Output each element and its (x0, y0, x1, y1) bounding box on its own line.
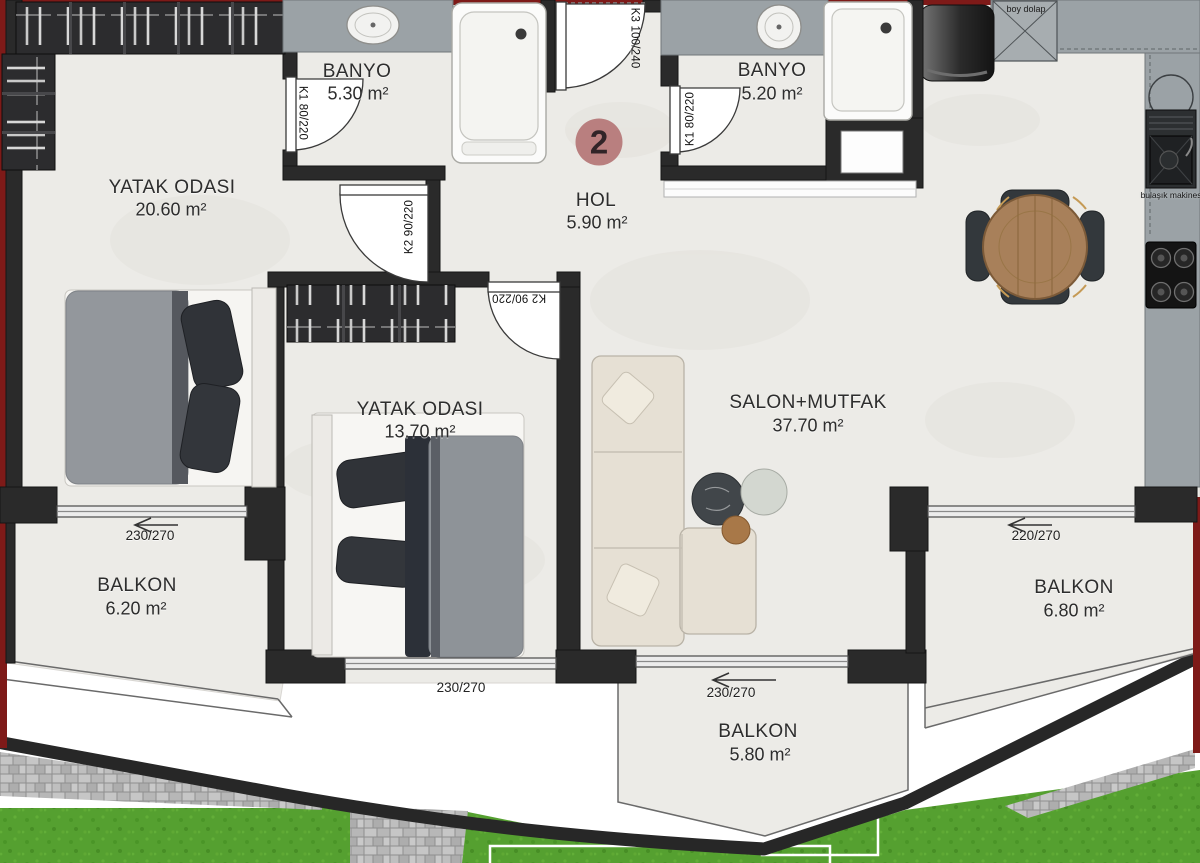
window-bedroom1-balkon (57, 506, 247, 517)
bathtub (452, 3, 546, 163)
salon-name-label: SALON+MUTFAK (729, 392, 886, 414)
door-leaf-k2-bedroom1 (340, 185, 428, 195)
shower-tray (824, 2, 912, 120)
floor-plan: YATAK ODASI 20.60 m² BANYO 5.30 m² HOL 5… (0, 0, 1200, 863)
balkon-bottom-area-label: 5.80 m² (729, 745, 790, 766)
banyo1-area-label: 5.30 m² (327, 84, 388, 105)
door-label-k2-bedroom2: K2 90/220 (492, 290, 546, 303)
bed1-headboard (252, 288, 276, 487)
balkon-left-area-label: 6.20 m² (105, 599, 166, 620)
door-leaf-k3-entrance (556, 2, 566, 90)
dishwasher-label: bulaşık makinesi (1141, 191, 1200, 201)
bedroom1-area-label: 20.60 m² (135, 200, 206, 221)
bed-bedroom1 (65, 288, 276, 487)
bedroom2-area-label: 13.70 m² (384, 422, 455, 443)
fridge (920, 5, 994, 81)
wardrobe-bedroom2 (287, 285, 455, 342)
shower-niche (841, 131, 903, 173)
door-label-k2-bedroom1: K2 90/220 (403, 200, 416, 254)
banyo2-counter (661, 0, 828, 55)
banyo1-name-label: BANYO (323, 61, 392, 83)
balkon-right-name-label: BALKON (1034, 577, 1114, 599)
door-leaf-k1-banyo2 (670, 86, 680, 154)
window-salon-right (928, 506, 1135, 517)
door-label-k1-banyo2: K1 80/220 (684, 92, 697, 146)
balkon-right-area-label: 6.80 m² (1043, 601, 1104, 622)
bed-bedroom2 (312, 413, 524, 657)
cooktop (1146, 242, 1196, 308)
bedroom1-name-label: YATAK ODASI (109, 177, 236, 199)
balkon-left-name-label: BALKON (97, 575, 177, 597)
window-salon-balkon (636, 656, 848, 667)
banyo2-name-label: BANYO (738, 60, 807, 82)
dishwasher (1146, 110, 1196, 188)
window-bedroom2-balkon (345, 658, 556, 669)
window-label-salon-right: 220/270 (1012, 528, 1061, 544)
wardrobe-bedroom1-top (16, 2, 285, 54)
window-label-bedroom2: 230/270 (437, 680, 486, 696)
wardrobe-bedroom1-left (2, 54, 55, 170)
hol-name-label: HOL (576, 190, 616, 212)
door-label-k1-banyo1: K1 80/220 (295, 86, 308, 140)
coffee-table-small (722, 516, 750, 544)
hol-area-label: 5.90 m² (566, 213, 627, 234)
tall-cabinet-label: boy dolap (1006, 4, 1045, 14)
bed2-headboard (312, 415, 332, 655)
unit-number-badge: 2 (576, 119, 623, 166)
window-label-bedroom1: 230/270 (126, 528, 175, 544)
salon-area-label: 37.70 m² (772, 416, 843, 437)
banyo2-area-label: 5.20 m² (741, 84, 802, 105)
coffee-table-light (741, 469, 787, 515)
balkon-bottom-name-label: BALKON (718, 721, 798, 743)
door-label-k3-entrance: K3 100/240 (627, 8, 640, 69)
stone-band-left (0, 752, 322, 810)
window-label-salon: 230/270 (707, 685, 756, 701)
bedroom2-name-label: YATAK ODASI (357, 399, 484, 421)
